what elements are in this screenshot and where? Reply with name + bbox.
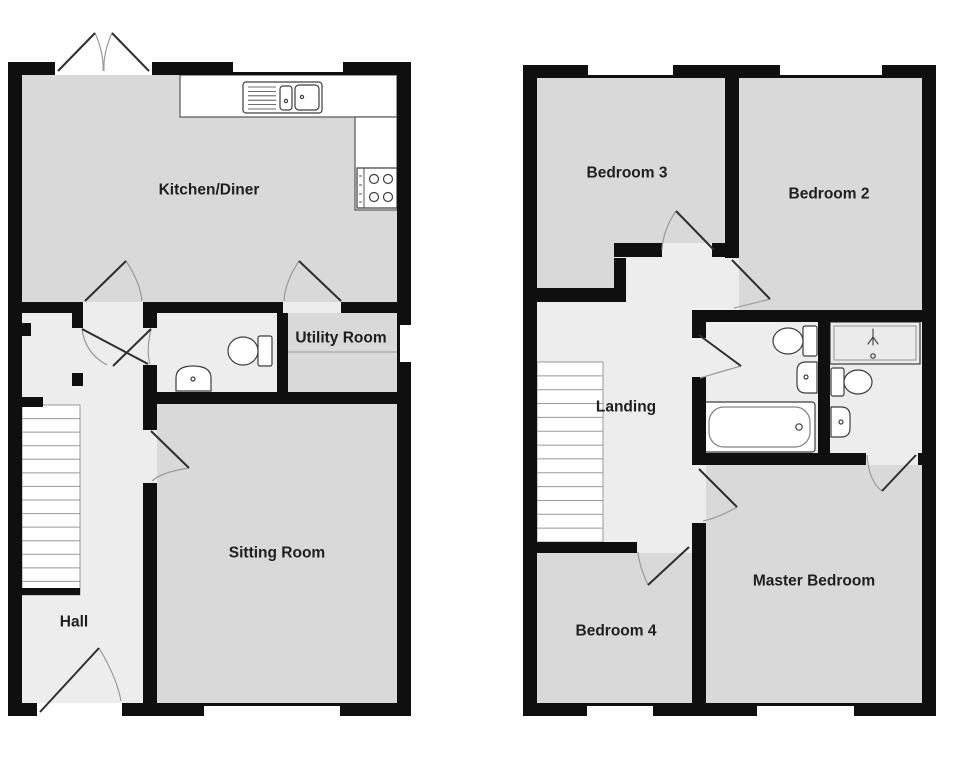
utility-window: [400, 325, 411, 362]
wall: [22, 397, 43, 407]
bedroom-4-label: Bedroom 4: [576, 623, 657, 640]
wall: [922, 65, 936, 716]
master-bedroom-window: [757, 706, 854, 716]
landing-staircase: [537, 362, 603, 542]
wall: [523, 288, 618, 302]
hob: [357, 168, 397, 208]
hall-staircase: [22, 405, 80, 595]
stair-base: [22, 588, 80, 595]
ground-floor-plan: Kitchen/DinerUtility RoomSitting RoomHal…: [8, 33, 411, 716]
utility-room-label: Utility Room: [295, 330, 386, 347]
wall: [712, 243, 739, 257]
bathroom-toilet-bowl: [773, 328, 803, 354]
front-door-opening: [37, 703, 122, 716]
wall: [692, 310, 922, 322]
wall: [614, 243, 662, 257]
kitchen-window: [233, 62, 343, 72]
bedroom-3-floor: [537, 243, 614, 288]
bathroom-basin: [797, 362, 817, 393]
bedroom-2-label: Bedroom 2: [789, 186, 870, 203]
floorplan-page: Kitchen/DinerUtility RoomSitting RoomHal…: [0, 0, 980, 769]
wc-toilet-bowl: [228, 337, 258, 365]
landing-label: Landing: [596, 399, 656, 416]
wall: [277, 302, 288, 392]
wall: [72, 313, 83, 328]
bedroom-3-floor: [537, 78, 725, 243]
bathroom-doorway: [692, 338, 706, 377]
ensuite-basin: [831, 407, 850, 437]
hall-label: Hall: [60, 614, 88, 631]
kitchen-hall-doorway: [83, 302, 143, 313]
bathtub: [704, 402, 815, 452]
sitting-room-doorway: [143, 430, 157, 483]
wall: [8, 62, 22, 716]
sitting-room-window: [204, 706, 340, 716]
landing-staircase-outline: [537, 362, 603, 542]
master-bedroom-label: Master Bedroom: [753, 573, 875, 590]
wall: [143, 392, 411, 404]
wc-basin: [176, 366, 211, 391]
bedroom-3-window: [588, 65, 673, 75]
bathroom-toilet-cistern: [803, 326, 817, 356]
utility-doorway: [283, 302, 341, 313]
wall: [818, 322, 830, 453]
kitchen-diner-label: Kitchen/Diner: [159, 182, 260, 199]
wall: [523, 65, 537, 716]
wall: [18, 323, 31, 336]
wall: [725, 78, 739, 258]
wall: [8, 302, 411, 313]
wall: [523, 703, 936, 716]
floorplan-drawing: Kitchen/DinerUtility RoomSitting RoomHal…: [0, 0, 980, 769]
wc-toilet-cistern: [258, 336, 272, 366]
ensuite-doorway: [866, 453, 918, 465]
bedroom-3-label: Bedroom 3: [587, 165, 668, 182]
sitting-room-label: Sitting Room: [229, 545, 325, 562]
wall: [72, 373, 83, 386]
bedroom-4-window: [587, 706, 653, 716]
wall: [397, 62, 411, 716]
ensuite-toilet-bowl: [844, 370, 872, 394]
first-floor-plan: Bedroom 3Bedroom 2LandingBedroom 4Master…: [523, 65, 936, 716]
ensuite-toilet-cistern: [831, 368, 844, 396]
bedroom-2-window: [780, 65, 882, 75]
